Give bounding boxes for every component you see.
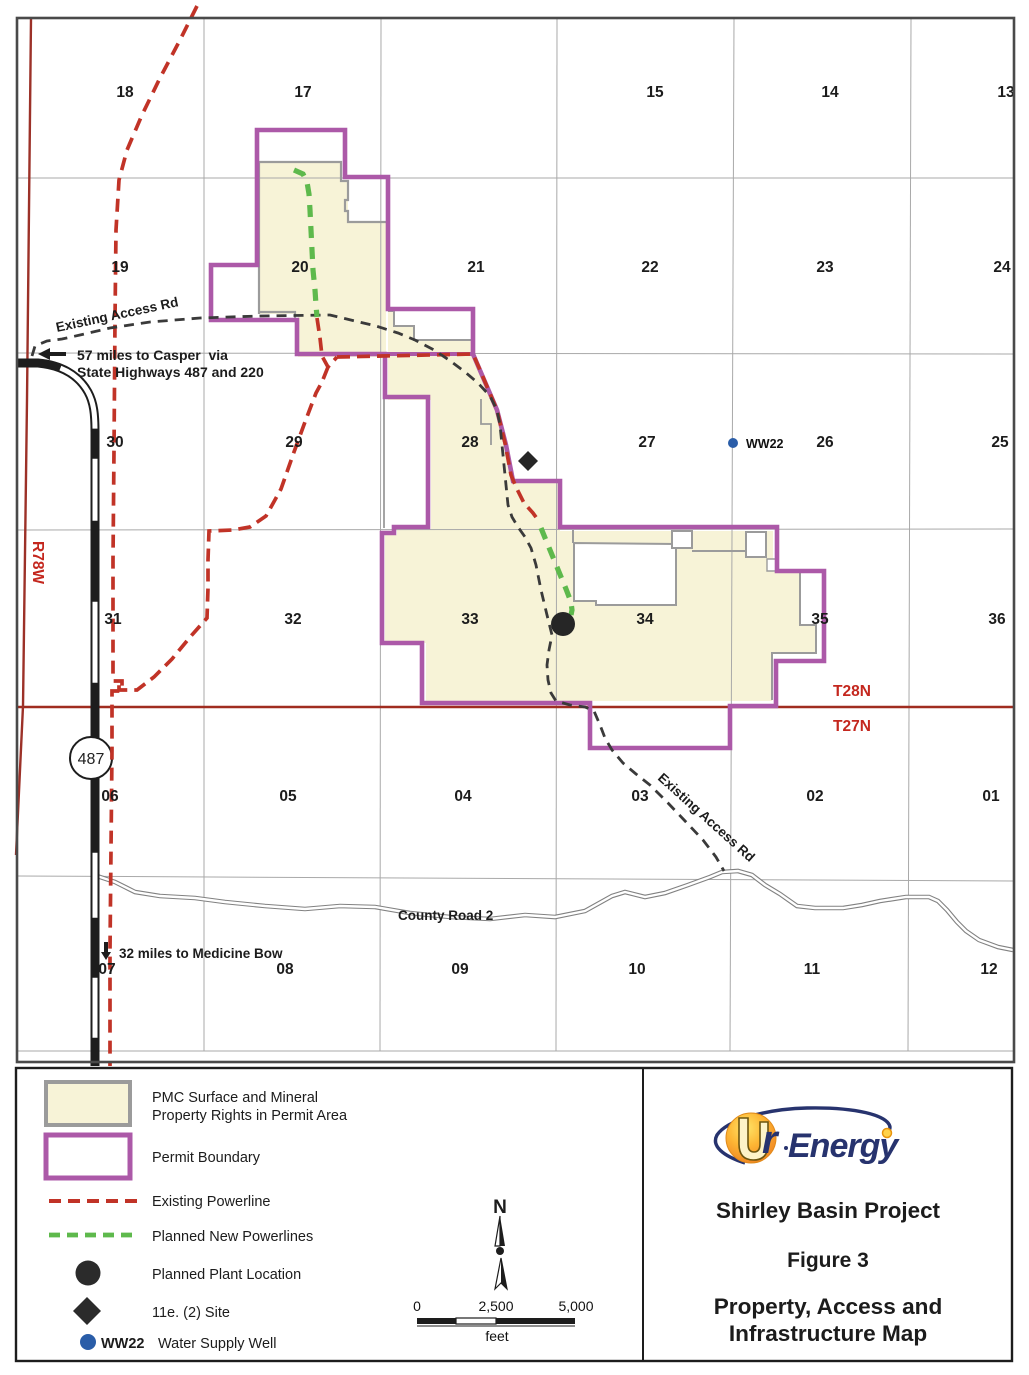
svg-text:WW22: WW22	[101, 1336, 145, 1352]
svg-text:05: 05	[279, 788, 297, 805]
svg-text:31: 31	[104, 611, 122, 628]
svg-text:PMC Surface and Mineral: PMC Surface and Mineral	[152, 1090, 318, 1106]
svg-text:R78W: R78W	[29, 541, 46, 584]
svg-text:10: 10	[628, 961, 645, 978]
svg-text:Property, Access and: Property, Access and	[714, 1294, 943, 1319]
svg-text:487: 487	[78, 751, 105, 768]
svg-text:Shirley Basin Project: Shirley Basin Project	[716, 1198, 941, 1223]
svg-text:27: 27	[638, 434, 655, 451]
svg-text:14: 14	[821, 84, 839, 101]
svg-text:19: 19	[111, 259, 129, 276]
svg-text:08: 08	[276, 961, 294, 978]
svg-text:35: 35	[811, 611, 829, 628]
svg-text:06: 06	[101, 788, 119, 805]
svg-text:32: 32	[284, 611, 301, 628]
svg-text:2,500: 2,500	[478, 1298, 513, 1314]
svg-text:18: 18	[116, 84, 134, 101]
svg-text:Permit Boundary: Permit Boundary	[152, 1150, 261, 1166]
svg-text:03: 03	[631, 788, 649, 805]
svg-text:13: 13	[997, 84, 1015, 101]
svg-text:Water Supply Well: Water Supply Well	[158, 1336, 276, 1352]
svg-text:21: 21	[467, 259, 485, 276]
svg-text:Figure 3: Figure 3	[787, 1249, 869, 1272]
svg-text:5,000: 5,000	[558, 1298, 593, 1314]
svg-text:07: 07	[98, 961, 115, 978]
svg-text:Planned Plant Location: Planned Plant Location	[152, 1267, 301, 1283]
svg-text:Energy: Energy	[788, 1127, 900, 1165]
svg-text:15: 15	[646, 84, 664, 101]
svg-text:09: 09	[451, 961, 469, 978]
svg-text:Planned New Powerlines: Planned New Powerlines	[152, 1229, 313, 1245]
svg-text:17: 17	[294, 84, 311, 101]
svg-text:20: 20	[291, 259, 308, 276]
svg-text:57 miles to Casper via: 57 miles to Casper via	[77, 347, 228, 363]
svg-text:29: 29	[285, 434, 303, 451]
svg-text:T27N: T27N	[833, 718, 871, 735]
svg-text:WW22: WW22	[746, 437, 784, 451]
svg-text:0: 0	[413, 1298, 421, 1314]
svg-text:Property Rights in Permit Area: Property Rights in Permit Area	[152, 1108, 348, 1124]
svg-text:Existing Powerline: Existing Powerline	[152, 1194, 270, 1210]
svg-text:12: 12	[980, 961, 997, 978]
svg-text:02: 02	[806, 788, 823, 805]
svg-text:36: 36	[988, 611, 1006, 628]
svg-text:11e. (2) Site: 11e. (2) Site	[152, 1305, 230, 1321]
svg-text:Infrastructure Map: Infrastructure Map	[729, 1321, 927, 1346]
svg-text:23: 23	[816, 259, 834, 276]
svg-text:28: 28	[461, 434, 479, 451]
svg-text:24: 24	[993, 259, 1011, 276]
svg-text:22: 22	[641, 259, 658, 276]
svg-text:32 miles to Medicine Bow: 32 miles to Medicine Bow	[119, 946, 283, 961]
svg-text:26: 26	[816, 434, 834, 451]
svg-text:11: 11	[804, 961, 821, 978]
svg-text:33: 33	[461, 611, 479, 628]
svg-text:State Highways 487 and 220: State Highways 487 and 220	[77, 364, 264, 380]
svg-text:01: 01	[982, 788, 1000, 805]
svg-text:r: r	[762, 1118, 780, 1162]
svg-text:N: N	[493, 1197, 507, 1218]
svg-text:feet: feet	[485, 1328, 508, 1344]
svg-text:County Road 2: County Road 2	[398, 908, 493, 923]
svg-text:04: 04	[454, 788, 472, 805]
svg-text:34: 34	[636, 611, 654, 628]
svg-text:25: 25	[991, 434, 1009, 451]
svg-text:T28N: T28N	[833, 683, 871, 700]
svg-text:30: 30	[106, 434, 123, 451]
